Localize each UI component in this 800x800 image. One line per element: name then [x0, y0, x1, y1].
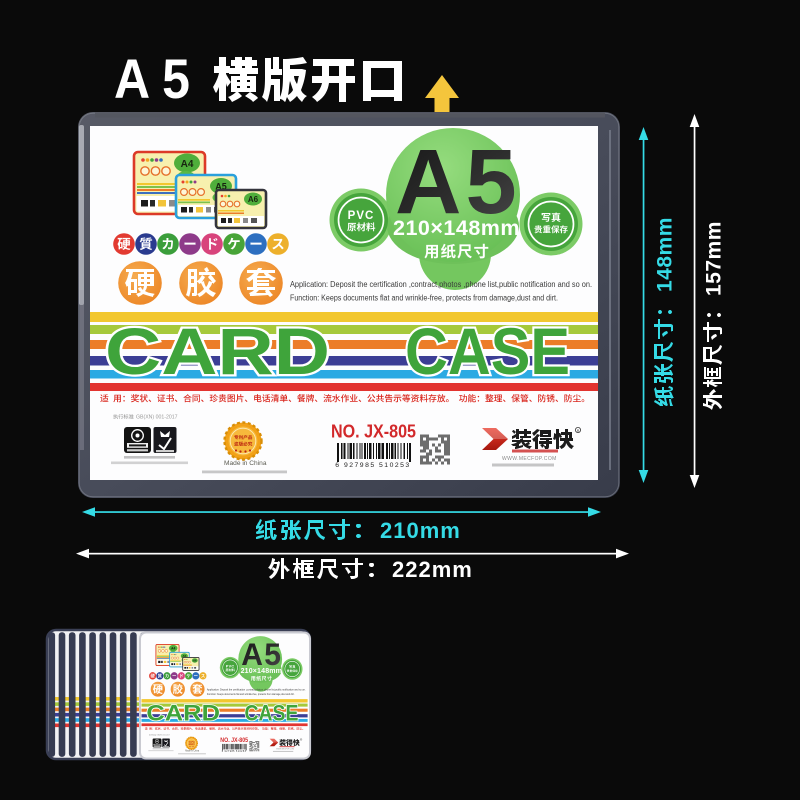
svg-text:R: R: [577, 429, 580, 433]
svg-text:148mm: 148mm: [654, 217, 677, 292]
svg-text:CARD: CARD: [105, 314, 330, 388]
svg-text:GB(XN) 001-2017: GB(XN) 001-2017: [136, 415, 178, 421]
svg-text:Application: Deposit the certi: Application: Deposit the certification ,…: [290, 280, 592, 289]
svg-text:Made in China: Made in China: [224, 460, 267, 467]
svg-text:A6: A6: [248, 195, 259, 204]
svg-text:210×148mm: 210×148mm: [393, 216, 520, 240]
svg-text:NO. JX-805: NO. JX-805: [331, 422, 416, 442]
svg-text:6 927985 510253: 6 927985 510253: [335, 462, 410, 469]
svg-text:A4: A4: [181, 159, 194, 170]
svg-text:222mm: 222mm: [392, 557, 473, 582]
svg-text:WWW.MECFOP.COM: WWW.MECFOP.COM: [502, 456, 557, 462]
svg-text:210mm: 210mm: [380, 518, 461, 543]
svg-text:CASE: CASE: [405, 314, 570, 388]
svg-text:PVC: PVC: [348, 210, 375, 222]
svg-text:157mm: 157mm: [703, 221, 726, 296]
svg-text:A 5: A 5: [114, 47, 190, 110]
svg-text:Function: Keeps documents flat: Function: Keeps documents flat and wrink…: [290, 294, 558, 303]
